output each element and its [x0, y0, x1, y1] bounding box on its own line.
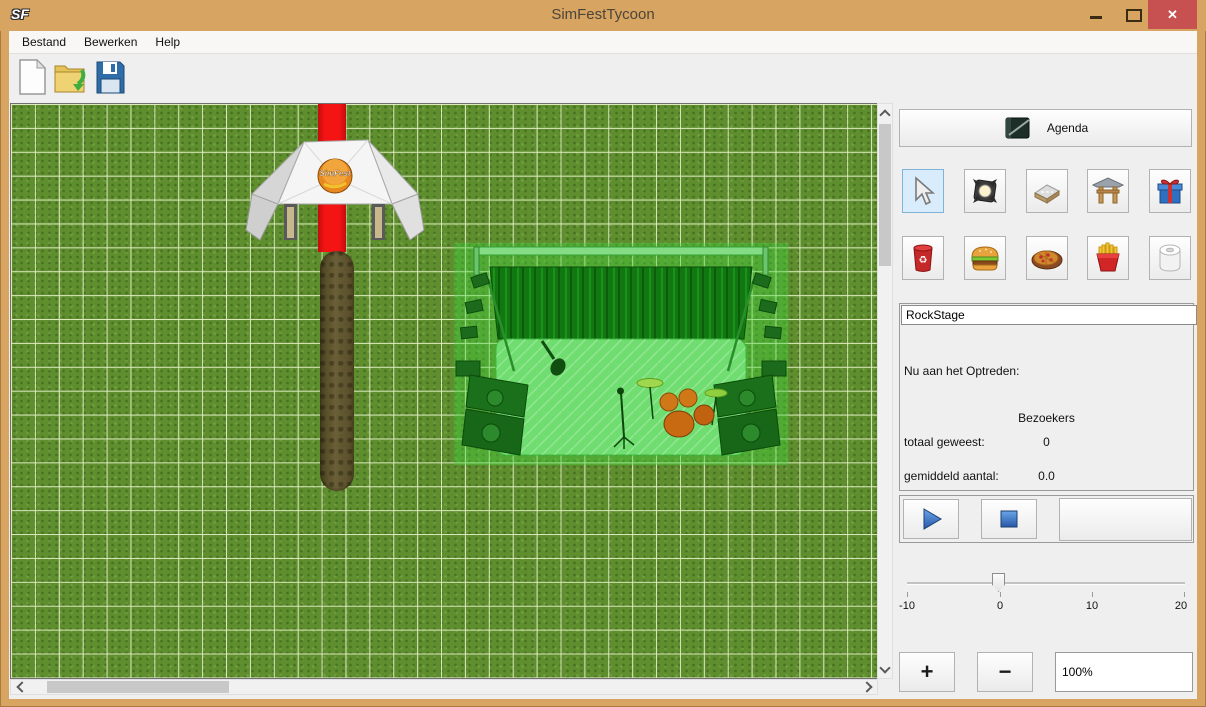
pizza-icon — [1030, 243, 1064, 273]
agenda-notebook-icon — [1003, 115, 1033, 141]
stage-info-panel: Nu aan het Optreden: Bezoekers totaal ge… — [899, 303, 1194, 491]
now-performing-label: Nu aan het Optreden: — [904, 364, 1019, 378]
slider-tick — [1184, 592, 1185, 597]
visitors-average-label: gemiddeld aantal: — [904, 469, 999, 483]
save-button[interactable] — [92, 58, 128, 96]
title-bar: SF SimFestTycoon ✕ — [0, 0, 1206, 31]
tool-toilet-paper[interactable] — [1149, 236, 1191, 280]
window-title: SimFestTycoon — [0, 6, 1206, 23]
menu-bestand[interactable]: Bestand — [14, 32, 74, 52]
stage-curtain — [490, 267, 752, 339]
stage-name-input[interactable] — [901, 305, 1197, 325]
svg-text:♻: ♻ — [919, 255, 928, 266]
scroll-right-button[interactable] — [861, 680, 875, 694]
tool-gift[interactable] — [1149, 169, 1191, 213]
select-cursor-icon — [909, 176, 937, 206]
stop-button[interactable] — [981, 499, 1037, 539]
speaker-stack-right — [714, 375, 780, 455]
zoom-level-field[interactable] — [1055, 652, 1193, 692]
stage-object-selected[interactable] — [454, 243, 788, 465]
tool-hamburger[interactable] — [964, 236, 1006, 280]
tent-leg-left — [284, 204, 297, 240]
horizontal-scrollbar[interactable] — [10, 679, 878, 695]
tool-fries[interactable] — [1087, 236, 1129, 280]
stop-icon — [996, 506, 1022, 532]
speaker-stack-left — [462, 375, 528, 455]
slider-label-min: -10 — [899, 600, 915, 612]
toilet-paper-icon — [1155, 242, 1185, 274]
close-button[interactable]: ✕ — [1148, 0, 1197, 29]
tool-select-cursor[interactable] — [902, 169, 944, 213]
minimize-button[interactable] — [1090, 16, 1102, 19]
entrance-tent-object[interactable]: SimFest — [244, 130, 426, 245]
gate-icon — [1091, 175, 1125, 207]
tool-trash-bin[interactable]: ♻ — [902, 236, 944, 280]
slider-tick — [907, 592, 908, 597]
play-button[interactable] — [903, 499, 959, 539]
trash-bin-icon: ♻ — [909, 242, 937, 274]
tool-road-tile[interactable] — [1026, 169, 1068, 213]
stage-lights-left — [456, 273, 489, 376]
visitors-total-label: totaal geweest: — [904, 435, 985, 449]
open-folder-icon — [52, 58, 88, 96]
tool-row-1 — [897, 169, 1196, 213]
play-icon — [918, 506, 944, 532]
slider-tick — [1092, 592, 1093, 597]
festival-map-canvas[interactable]: SimFest — [10, 103, 878, 679]
stage-illustration — [454, 243, 788, 465]
dirt-path-object[interactable] — [320, 251, 354, 491]
vertical-scrollbar[interactable] — [877, 103, 893, 679]
maximize-button[interactable] — [1126, 9, 1142, 22]
stage-truss — [476, 247, 766, 255]
slider-tick — [1000, 592, 1001, 597]
scroll-left-button[interactable] — [13, 680, 27, 694]
tool-spotlight[interactable] — [964, 169, 1006, 213]
spotlight-icon — [969, 175, 1001, 207]
tool-pizza[interactable] — [1026, 236, 1068, 280]
open-file-button[interactable] — [52, 58, 88, 96]
agenda-button-label: Agenda — [1047, 121, 1088, 135]
agenda-button[interactable]: Agenda — [899, 109, 1192, 147]
menu-help[interactable]: Help — [147, 32, 188, 52]
scroll-up-button[interactable] — [878, 106, 892, 120]
visitors-header: Bezoekers — [1018, 411, 1075, 425]
new-file-button[interactable] — [14, 58, 50, 96]
slider-label-zero: 0 — [997, 600, 1003, 612]
scroll-down-button[interactable] — [878, 662, 892, 676]
new-document-icon — [15, 58, 49, 96]
playback-extra-button[interactable] — [1059, 498, 1192, 541]
slider-label-max: 20 — [1175, 600, 1187, 612]
hamburger-icon — [968, 243, 1002, 273]
visitors-average-value: 0.0 — [1038, 469, 1055, 483]
slider-label-ten: 10 — [1086, 600, 1098, 612]
menu-bar: Bestand Bewerken Help — [9, 31, 1197, 54]
visitors-total-value: 0 — [1043, 435, 1050, 449]
playback-panel — [899, 495, 1194, 543]
road-tile-icon — [1030, 176, 1064, 206]
gift-icon — [1154, 175, 1186, 207]
menu-bewerken[interactable]: Bewerken — [76, 32, 145, 52]
zoom-in-button[interactable]: + — [899, 652, 955, 692]
speed-slider-track[interactable] — [907, 582, 1185, 585]
tool-row-2: ♻ — [897, 236, 1196, 280]
vertical-scroll-thumb[interactable] — [879, 124, 891, 266]
fries-icon — [1093, 242, 1123, 274]
tent-leg-right — [372, 204, 385, 240]
tool-gate[interactable] — [1087, 169, 1129, 213]
save-floppy-icon — [94, 58, 126, 96]
tent-logo-text: SimFest — [319, 169, 350, 178]
zoom-out-button[interactable]: − — [977, 652, 1033, 692]
horizontal-scroll-thumb[interactable] — [47, 681, 229, 693]
app-window: SF SimFestTycoon ✕ Bestand Bewerken Help — [0, 0, 1206, 707]
stage-lights-right — [753, 273, 786, 376]
